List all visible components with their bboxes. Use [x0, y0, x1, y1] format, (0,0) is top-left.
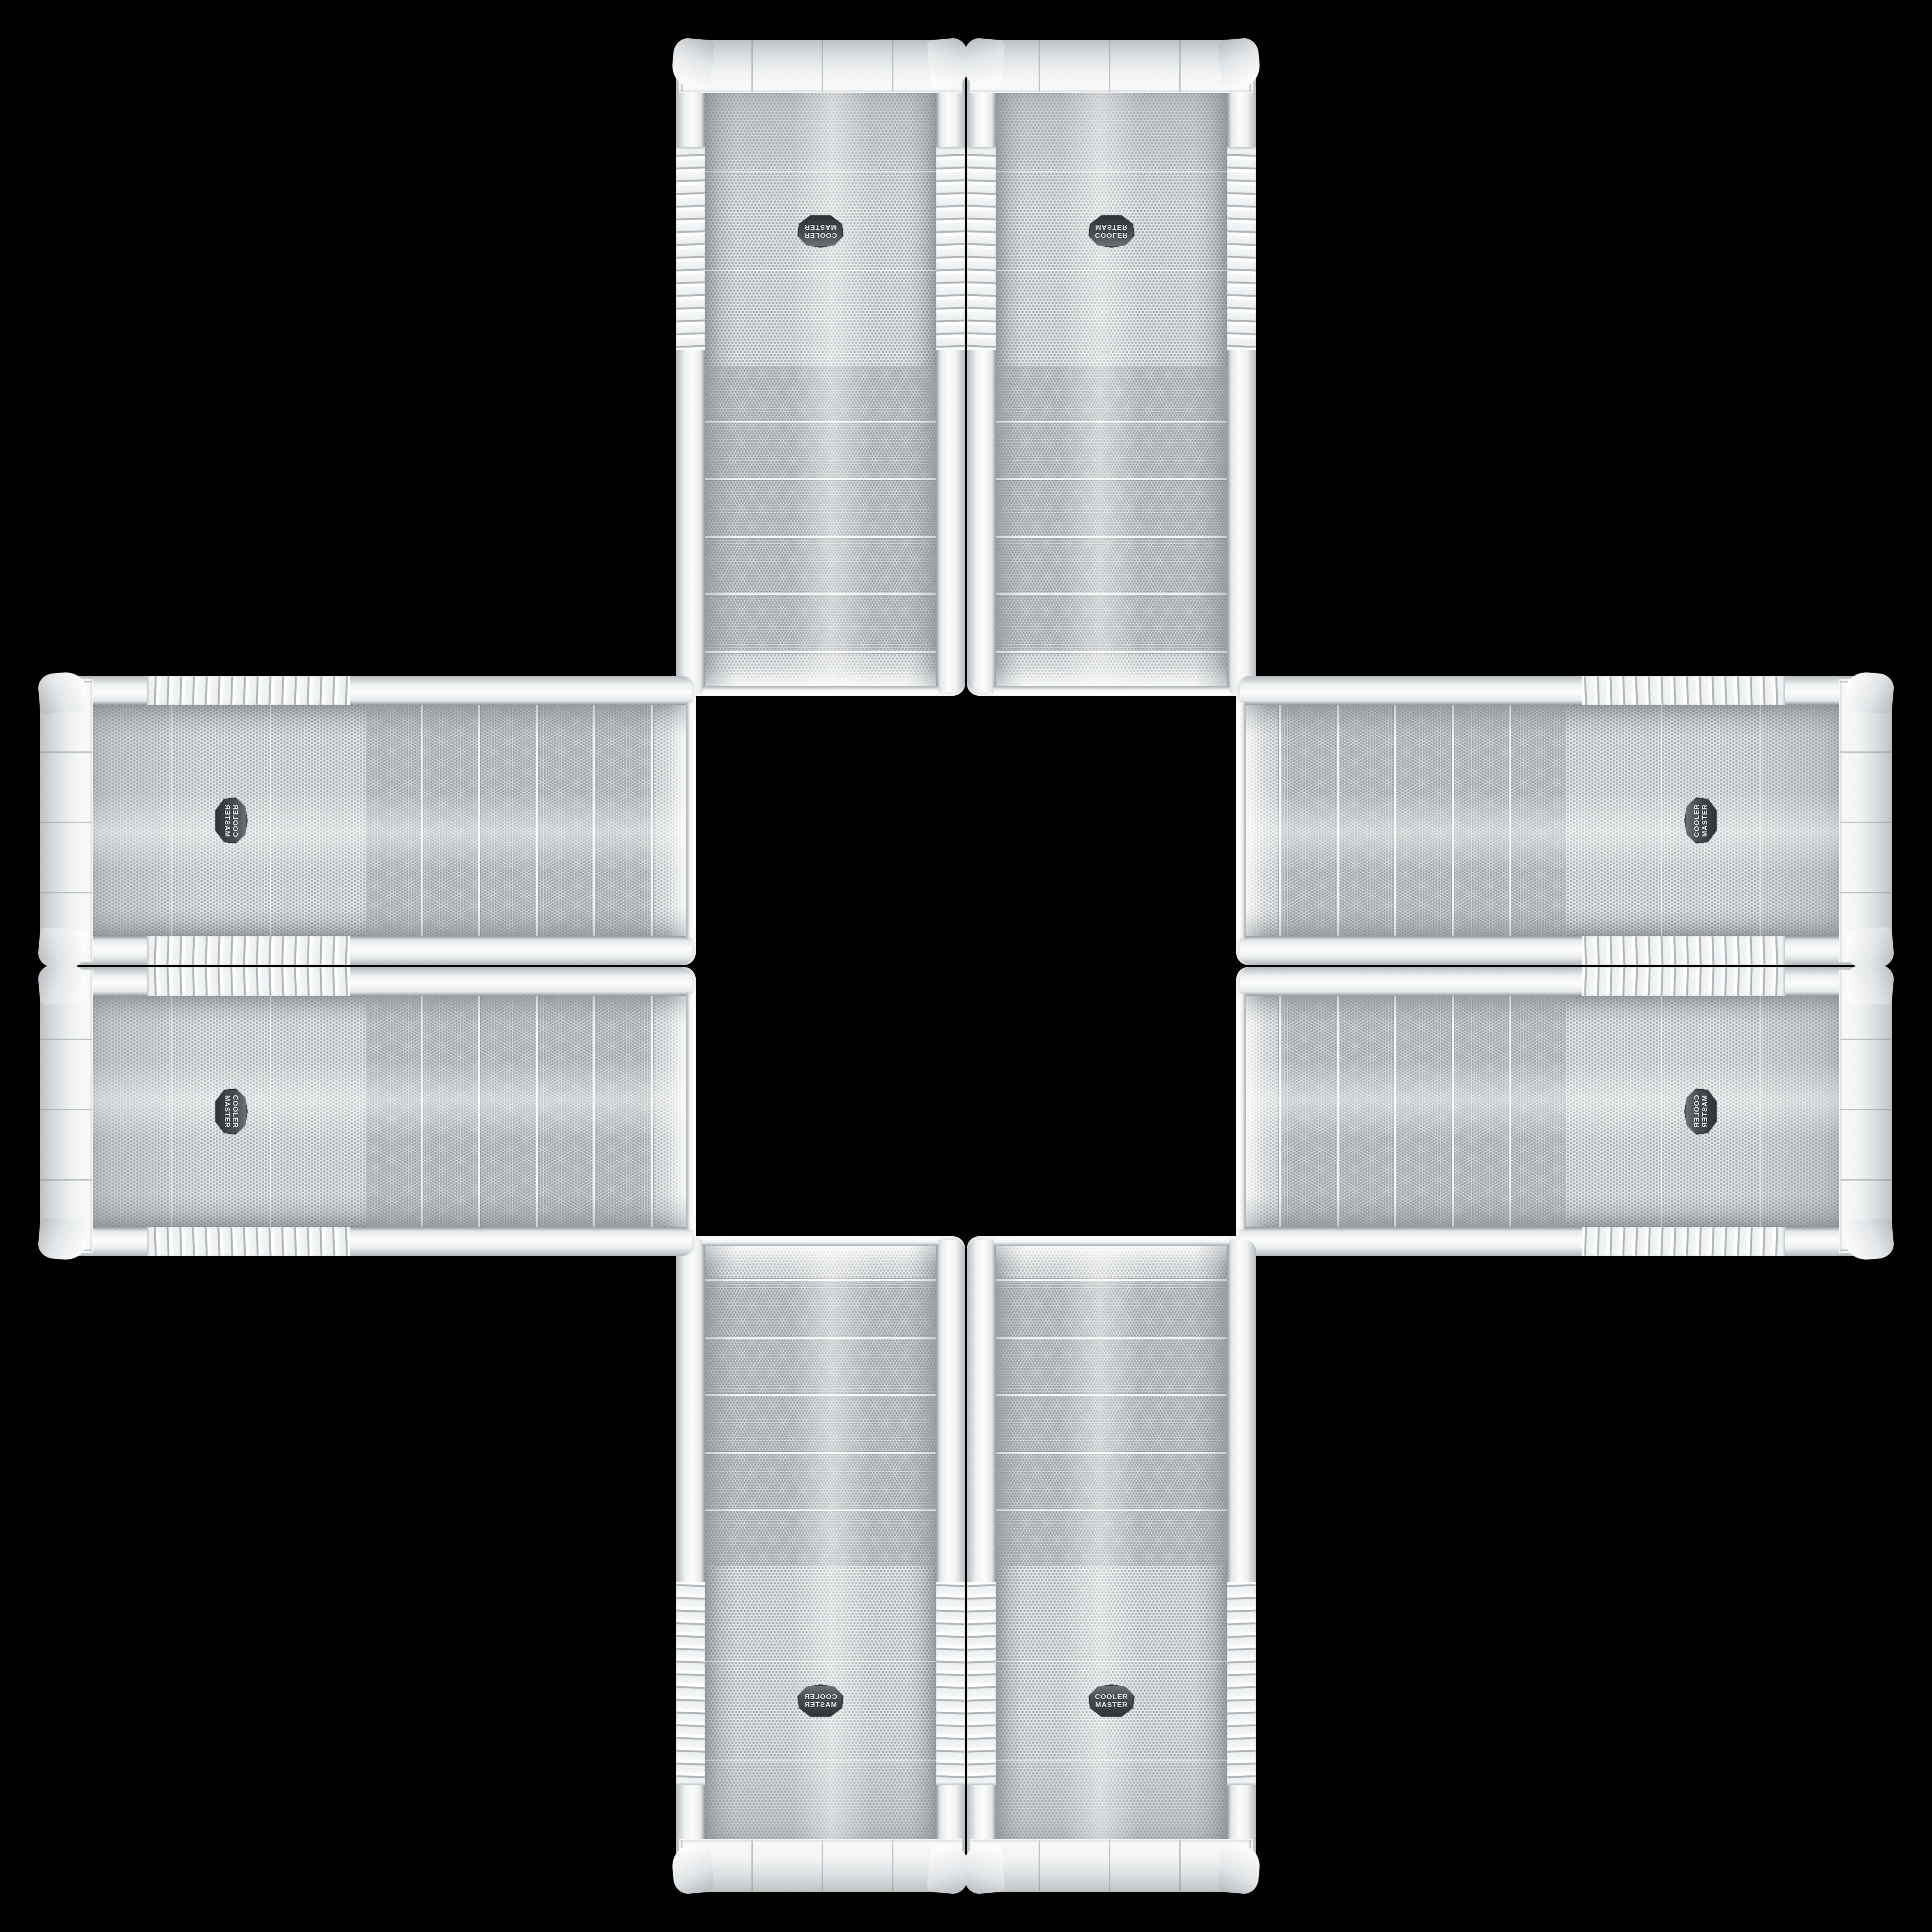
tower-bottom-right: COOLER MASTER	[967, 1236, 1256, 1892]
pc-case: COOLER MASTER	[967, 40, 1256, 696]
side-rail-right	[45, 676, 692, 705]
badge-text-line1: COOLER	[1693, 1095, 1701, 1128]
case-bottom-cap	[970, 40, 1253, 93]
case-foot-right	[1844, 671, 1895, 715]
case-left-top: COOLER MASTER	[40, 676, 696, 965]
badge-text-line1: COOLER	[1095, 1693, 1128, 1701]
badge-text-line2: MASTER	[223, 1095, 231, 1128]
side-vent-ribs	[1582, 1227, 1785, 1256]
front-mesh-panel	[705, 92, 936, 689]
mesh-highlight	[1243, 996, 1840, 1227]
case-top-rim	[702, 686, 939, 694]
badge-text-line1: COOLER	[231, 1095, 239, 1128]
tower-bottom-left: COOLER MASTER	[676, 1236, 965, 1892]
side-rail-left	[1240, 936, 1887, 965]
pc-case: COOLER MASTER	[40, 967, 696, 1256]
badge-text-line2: MASTER	[804, 223, 837, 231]
case-bottom-cap	[1839, 679, 1892, 962]
badge-text-line1: COOLER	[1095, 231, 1128, 239]
case-bottom-cap	[40, 679, 93, 962]
orientation-flipped-vertical: COOLER MASTER	[967, 40, 1256, 696]
badge-text-line1: COOLER	[1693, 804, 1701, 837]
pc-case: COOLER MASTER	[676, 40, 965, 696]
case-top-rim	[686, 702, 694, 939]
badge-text-line2: MASTER	[804, 1701, 837, 1709]
pc-case: COOLER MASTER	[967, 1236, 1256, 1892]
badge-text-line2: MASTER	[1701, 1095, 1709, 1128]
side-vent-ribs	[1582, 967, 1785, 996]
mesh-highlight	[1243, 705, 1840, 936]
mesh-highlight	[92, 996, 689, 1227]
tower-top-left: COOLER MASTER	[676, 40, 965, 696]
case-bottom-cap	[970, 1839, 1253, 1892]
pc-case: COOLER MASTER	[1236, 676, 1892, 965]
orientation-rotated-90-ccw: COOLER MASTER	[1236, 676, 1892, 965]
side-rail-right	[1240, 676, 1887, 705]
case-foot-left	[1844, 962, 1895, 1006]
side-vent-ribs	[1227, 1582, 1256, 1785]
case-right-bottom: COOLER MASTER	[1236, 967, 1892, 1256]
pc-case: COOLER MASTER	[676, 1236, 965, 1892]
case-top-rim	[993, 686, 1230, 694]
mesh-highlight	[996, 1243, 1227, 1840]
side-rail-right	[45, 1227, 692, 1256]
badge-text-line1: COOLER	[804, 231, 837, 239]
case-foot-left	[962, 1844, 1006, 1895]
side-vent-ribs	[936, 1582, 965, 1785]
case-foot-right	[671, 1844, 715, 1895]
pc-case: COOLER MASTER	[40, 676, 696, 965]
case-collage: COOLER MASTER COOLER MASTER	[0, 0, 1932, 1932]
side-vent-ribs	[1582, 676, 1785, 705]
badge-text-line2: MASTER	[1701, 804, 1709, 837]
badge-text-line2: MASTER	[223, 804, 231, 837]
orientation-rotated-90-ccw-flipped: COOLER MASTER	[1236, 967, 1892, 1256]
case-top-rim	[993, 1238, 1230, 1246]
front-mesh-panel	[1243, 996, 1840, 1227]
front-mesh-panel	[1243, 705, 1840, 936]
case-left-bottom: COOLER MASTER	[40, 967, 696, 1256]
side-vent-ribs	[676, 1582, 705, 1785]
case-top-rim	[702, 1238, 939, 1246]
pc-case: COOLER MASTER	[1236, 967, 1892, 1256]
case-bottom-cap	[679, 40, 962, 93]
badge-text-line1: COOLER	[804, 1693, 837, 1701]
mesh-highlight	[705, 1243, 936, 1840]
side-rail-right	[1227, 1240, 1256, 1887]
side-vent-ribs	[676, 147, 705, 350]
side-vent-ribs	[967, 147, 996, 350]
mesh-highlight	[996, 92, 1227, 689]
front-mesh-panel	[92, 996, 689, 1227]
front-mesh-panel	[705, 1243, 936, 1840]
case-right-top: COOLER MASTER	[1236, 676, 1892, 965]
case-top-rim	[686, 993, 694, 1230]
side-rail-left	[967, 45, 996, 692]
badge-text-line1: COOLER	[231, 804, 239, 837]
front-mesh-panel	[92, 705, 689, 936]
side-rail-left	[1240, 967, 1887, 996]
side-rail-right	[1240, 1227, 1887, 1256]
side-vent-ribs	[1582, 936, 1785, 965]
side-vent-ribs	[147, 1227, 350, 1256]
side-rail-left	[45, 936, 692, 965]
front-mesh-panel	[996, 1243, 1227, 1840]
orientation-upright: COOLER MASTER	[967, 1236, 1256, 1892]
side-vent-ribs	[147, 676, 350, 705]
side-vent-ribs	[967, 1582, 996, 1785]
badge-text-line2: MASTER	[1095, 1701, 1128, 1709]
orientation-flipped-horizontal: COOLER MASTER	[676, 1236, 965, 1892]
badge-text-line2: MASTER	[1095, 223, 1128, 231]
front-mesh-panel	[996, 92, 1227, 689]
side-rail-left	[936, 1240, 965, 1887]
side-rail-left	[936, 45, 965, 692]
orientation-rotated-180: COOLER MASTER	[676, 40, 965, 696]
side-vent-ribs	[147, 936, 350, 965]
case-bottom-cap	[679, 1839, 962, 1892]
side-rail-left	[45, 967, 692, 996]
case-top-rim	[1238, 993, 1246, 1230]
mesh-highlight	[92, 705, 689, 936]
side-rail-left	[967, 1240, 996, 1887]
case-bottom-cap	[1839, 970, 1892, 1253]
side-rail-right	[676, 1240, 705, 1887]
case-bottom-cap	[40, 970, 93, 1253]
tower-top-right: COOLER MASTER	[967, 40, 1256, 696]
side-vent-ribs	[936, 147, 965, 350]
side-rail-right	[676, 45, 705, 692]
orientation-rotated-90-cw: COOLER MASTER	[40, 967, 696, 1256]
orientation-rotated-90-cw-flipped: COOLER MASTER	[40, 676, 696, 965]
side-vent-ribs	[1227, 147, 1256, 350]
side-vent-ribs	[147, 967, 350, 996]
mesh-highlight	[705, 92, 936, 689]
case-top-rim	[1238, 702, 1246, 939]
side-rail-right	[1227, 45, 1256, 692]
